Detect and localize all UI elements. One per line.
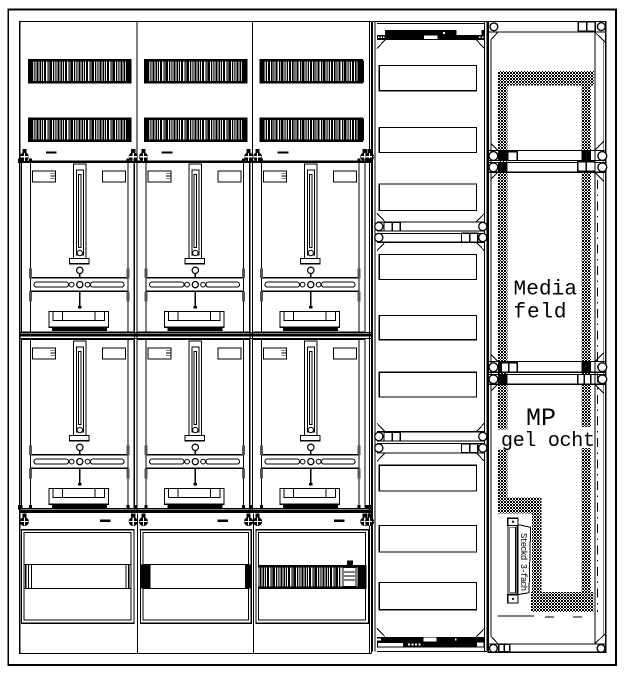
svg-text:gel ocht: gel ocht (501, 430, 595, 453)
svg-text:feld: feld (514, 302, 567, 325)
svg-text:MP: MP (526, 404, 556, 433)
svg-text:Media: Media (514, 279, 578, 302)
svg-text:Steckd 3-fach: Steckd 3-fach (518, 533, 528, 591)
